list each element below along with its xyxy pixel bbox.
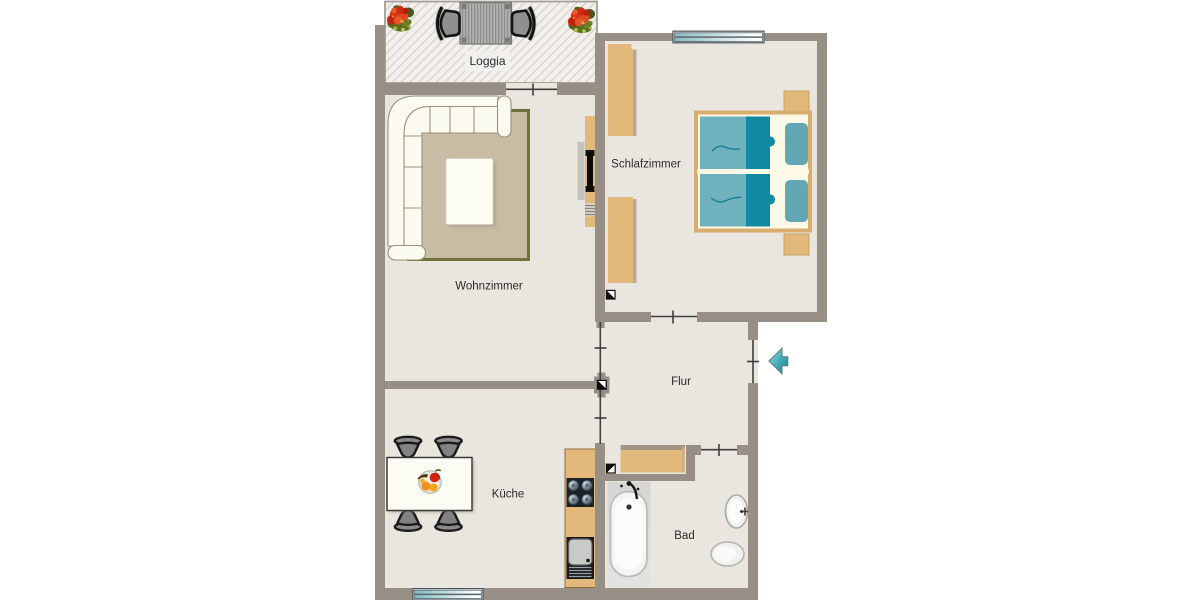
svg-text:Küche: Küche [492,489,525,501]
svg-text:Flur: Flur [671,376,691,388]
svg-text:Loggia: Loggia [469,54,505,68]
svg-text:Wohnzimmer: Wohnzimmer [455,281,523,293]
svg-text:Schlafzimmer: Schlafzimmer [611,159,681,171]
svg-text:Bad: Bad [674,530,694,542]
